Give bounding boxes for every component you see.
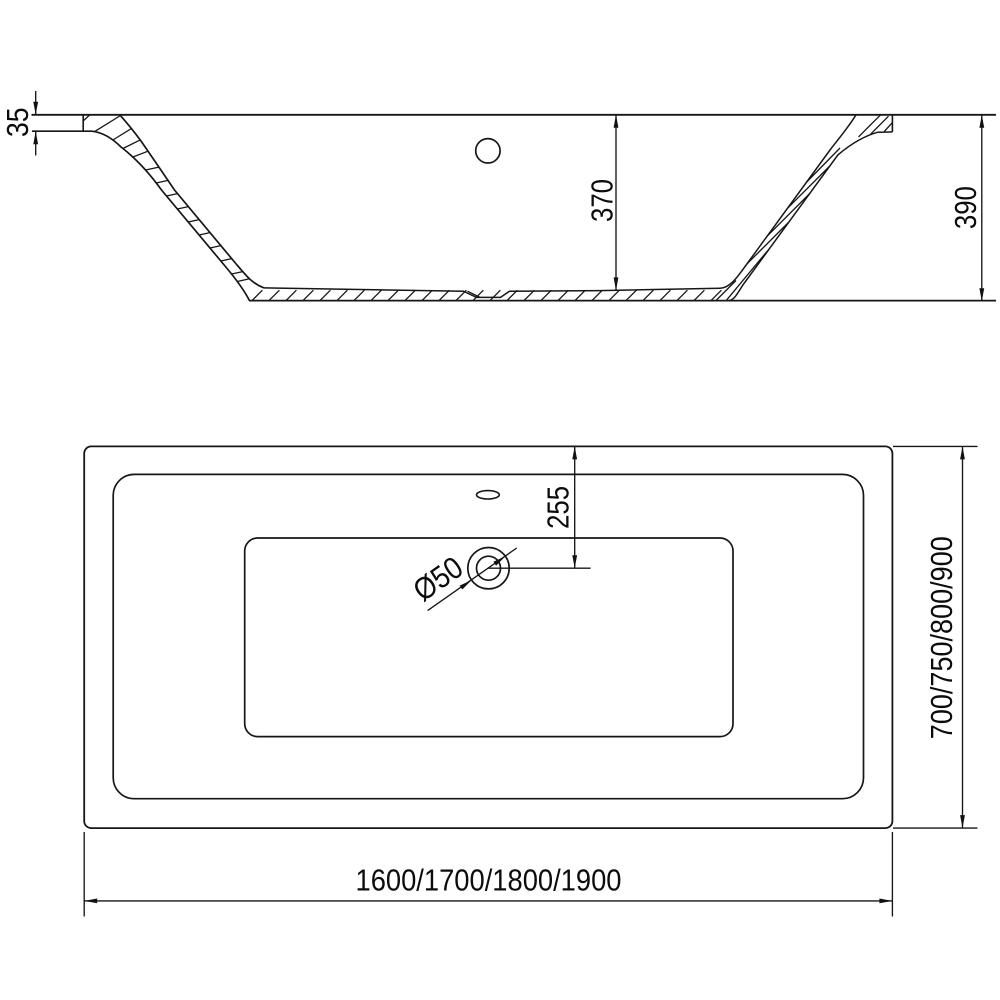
svg-text:370: 370 bbox=[584, 179, 619, 222]
svg-text:700/750/800/900: 700/750/800/900 bbox=[924, 536, 959, 739]
svg-text:255: 255 bbox=[541, 486, 576, 529]
svg-text:35: 35 bbox=[0, 107, 35, 137]
svg-text:390: 390 bbox=[948, 186, 983, 229]
svg-text:1600/1700/1800/1900: 1600/1700/1800/1900 bbox=[356, 863, 622, 898]
